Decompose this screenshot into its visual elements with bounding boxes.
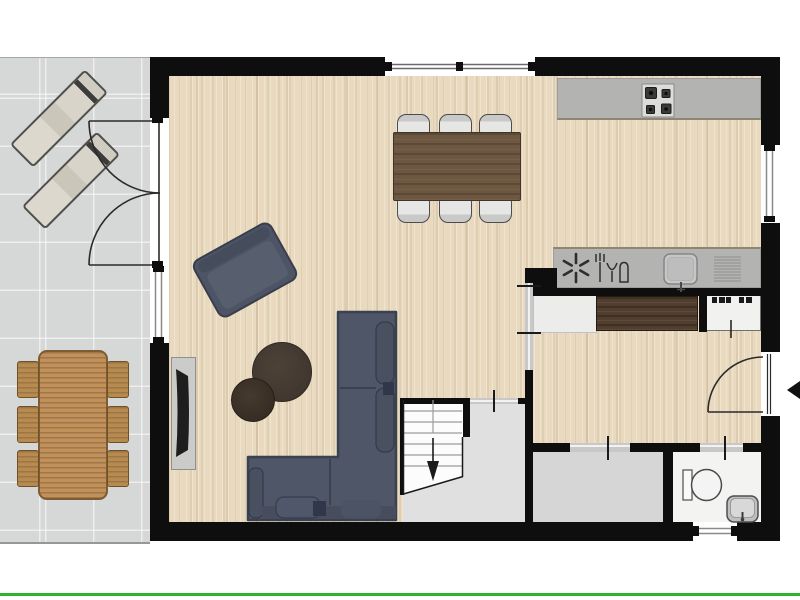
wall-bottom-right: [737, 522, 780, 541]
kitchen-counter-sink: [553, 247, 761, 288]
appliance-with-knobs: [706, 294, 761, 331]
outdoor-chair: [17, 450, 39, 487]
window-right: [761, 145, 780, 223]
floor-plan-canvas: [0, 0, 800, 600]
wall-bottom-left: [150, 522, 693, 541]
storage-room-floor: [533, 452, 663, 523]
storage-door-opening: [570, 443, 630, 452]
bottom-green-border: [0, 593, 800, 596]
coffee-table-small: [231, 378, 275, 422]
front-door-opening: [761, 352, 780, 416]
wall-top-left: [150, 57, 385, 76]
dining-chair: [397, 199, 430, 223]
window-bottom: [693, 522, 737, 541]
wall-under-counter: [533, 288, 762, 296]
wall-stairhall-a: [400, 398, 470, 404]
outdoor-dining-table: [38, 350, 108, 500]
wall-hall-west: [525, 370, 533, 522]
stair-stub-wall: [463, 400, 470, 437]
wall-stairhall-b: [518, 398, 525, 404]
wall-hall-south-b: [630, 443, 663, 452]
wall-left-lower: [150, 343, 169, 541]
dining-chair: [439, 114, 472, 134]
wall-storage-bathroom: [663, 443, 673, 522]
window-left: [150, 268, 169, 343]
wall-right-upper: [761, 57, 780, 145]
outdoor-chair: [17, 361, 39, 398]
bathroom-floor: [673, 452, 762, 523]
stairhall-door-opening: [470, 398, 518, 404]
wall-left-upper: [150, 57, 169, 118]
outdoor-chair: [107, 450, 129, 487]
hall-door-opening: [525, 283, 533, 370]
wall-hall-south-d: [743, 443, 762, 452]
french-door-opening: [150, 118, 169, 268]
hallway-cabinet: [533, 292, 597, 333]
wall-divider: [699, 293, 707, 332]
outdoor-chair: [107, 361, 129, 398]
kitchen-counter-hob: [557, 78, 761, 120]
window-top: [385, 57, 535, 76]
entrance-arrow: [787, 381, 800, 399]
hallway-sideboard: [596, 296, 698, 331]
dining-table: [393, 132, 521, 201]
tv-console: [171, 357, 196, 470]
dining-chair: [397, 114, 430, 134]
stair-stringer-wall: [400, 398, 404, 495]
wall-hall-south-c: [673, 443, 700, 452]
wall-hall-south-a: [533, 443, 570, 452]
dining-chair: [439, 199, 472, 223]
dining-chair: [479, 114, 512, 134]
wall-top-right: [535, 57, 780, 76]
outdoor-chair: [17, 406, 39, 443]
wall-right-middle: [761, 223, 780, 352]
dining-chair: [479, 199, 512, 223]
outdoor-chair: [107, 406, 129, 443]
bathroom-door-opening: [700, 443, 743, 452]
